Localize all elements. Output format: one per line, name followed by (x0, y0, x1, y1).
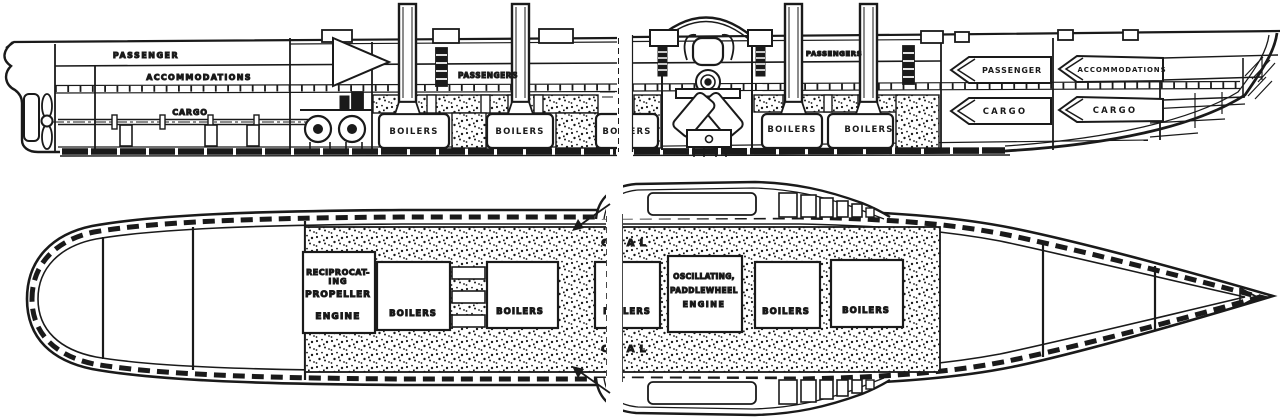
boilers-plan-label: BOILERS (389, 309, 437, 319)
vent-cowl (333, 38, 389, 86)
ship-cutaway-diagram: BOILERS BOILERS BOILERS BOILERS BOILERS (0, 0, 1282, 419)
shaft-bearing (205, 125, 217, 146)
cargo-bow-fwd-label: CARGO (1093, 106, 1138, 116)
propeller-icon (42, 94, 53, 149)
deck-beam-ticks (55, 82, 1240, 94)
funnel (395, 4, 420, 114)
reciprocating-label-1: RECIPROCAT- (306, 268, 370, 277)
passenger-aft-label: PASSENGER (113, 51, 179, 60)
diagram-svg: BOILERS BOILERS BOILERS BOILERS BOILERS (0, 0, 1282, 419)
banner-cargo-aft: CARGO (951, 98, 1051, 124)
passenger-bow-label: PASSENGER (982, 66, 1042, 75)
paddle-sponson (596, 182, 890, 219)
elevation-view: BOILERS BOILERS BOILERS BOILERS BOILERS (4, 0, 1280, 172)
paddle-sponson-mirror (596, 378, 890, 415)
rudder (24, 94, 39, 141)
shaft-bearing (247, 125, 259, 146)
banner-cargo-fwd: CARGO (1059, 97, 1163, 122)
boiler-room (755, 262, 820, 328)
vent-trunk (352, 92, 363, 109)
boilers-label: BOILERS (495, 127, 544, 137)
funnel (856, 4, 881, 114)
reciprocating-label-3: PROPELLER (305, 290, 371, 300)
oscillating-label-2: PADDLEWHEEL (670, 286, 738, 295)
boiler-room (487, 262, 558, 328)
bow-structure (1005, 33, 1277, 151)
reciprocating-label-4: ENGINE (315, 312, 360, 322)
boilers-label: BOILERS (844, 125, 893, 135)
boiler-room (377, 262, 450, 330)
boiler-room (595, 262, 660, 328)
accommodations-bow-label: ACCOMMODATIONS (1077, 66, 1166, 74)
passengers-fwd-label: PASSENGERS (806, 50, 862, 58)
accommodations-aft-label: ACCOMMODATIONS (146, 73, 252, 82)
banner-accommodations: ACCOMMODATIONS (1059, 56, 1167, 82)
paddle-engine-elevation (650, 18, 772, 158)
oscillating-label-1: OSCILLATING, (673, 272, 735, 281)
cargo-bow-aft-label: CARGO (983, 107, 1028, 117)
boilers-label: BOILERS (389, 127, 438, 137)
banner-passenger: PASSENGER (951, 57, 1051, 83)
cargo-aft-label: CARGO (172, 108, 208, 117)
funnel (508, 4, 533, 114)
boilers-plan-label: BOILERS (496, 307, 544, 317)
propeller-shaft (52, 115, 312, 146)
funnel (781, 4, 806, 114)
boilers-plan-label: BOILERS (762, 307, 810, 317)
boilers-label: BOILERS (767, 125, 816, 135)
passengers-mid-label: PASSENGERS (458, 71, 518, 80)
boilers-plan-label: BOILERS (842, 306, 890, 316)
plan-compartments (303, 252, 903, 333)
plan-view: RECIPROCAT- ING PROPELLER ENGINE BOILERS… (27, 176, 1273, 419)
shaft-bearing (120, 125, 132, 146)
stern-profile (4, 42, 60, 152)
oscillating-label-3: ENGINE (683, 300, 726, 309)
reciprocating-label-2: ING (328, 277, 347, 286)
boiler-room (831, 260, 903, 327)
